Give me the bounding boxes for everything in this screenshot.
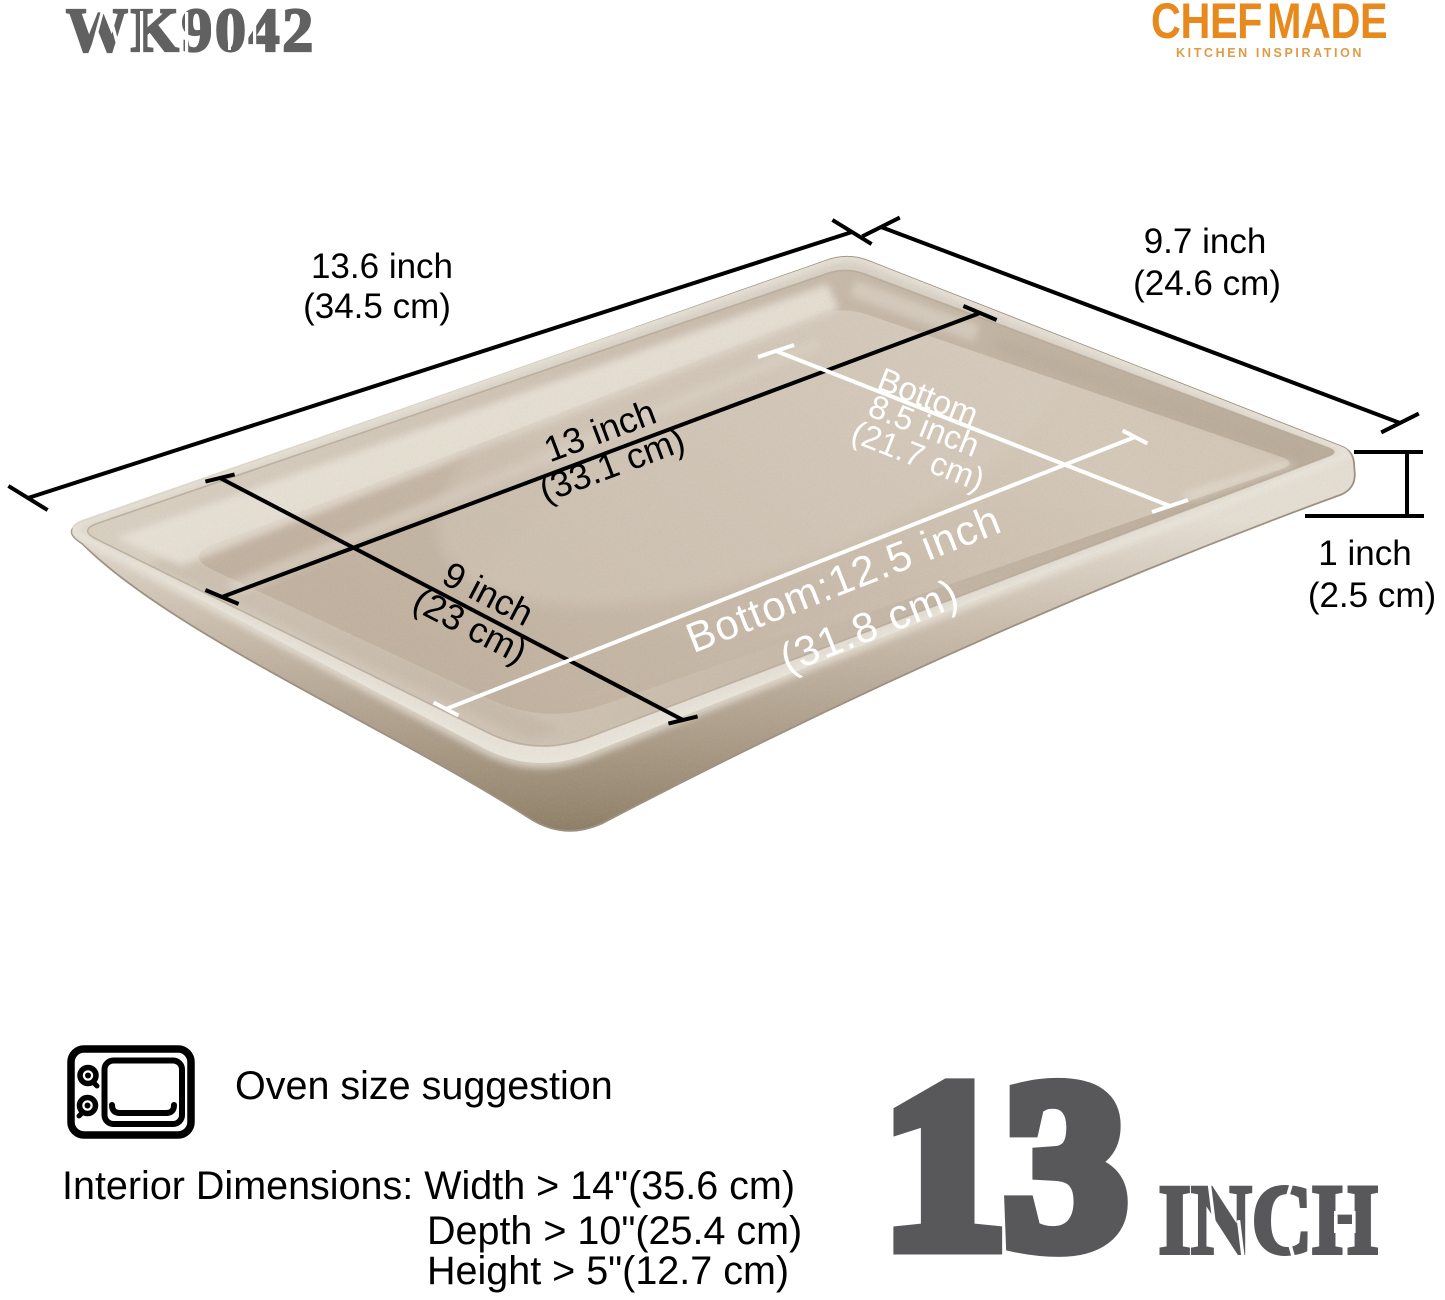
svg-text:WK9042: WK9042: [66, 0, 316, 65]
svg-text:Interior Dimensions: Width > 1: Interior Dimensions: Width > 14"(35.6 cm…: [62, 1164, 795, 1208]
svg-text:1 inch: 1 inch: [1318, 534, 1411, 573]
svg-text:CHEFMADE: CHEFMADE: [1151, 0, 1387, 49]
svg-text:13: 13: [884, 1033, 1127, 1295]
svg-text:Oven size suggestion: Oven size suggestion: [235, 1064, 613, 1108]
svg-text:Height > 5"(12.7 cm): Height > 5"(12.7 cm): [427, 1249, 789, 1293]
svg-text:(2.5 cm): (2.5 cm): [1308, 576, 1436, 615]
svg-text:Depth > 10"(25.4 cm): Depth > 10"(25.4 cm): [427, 1209, 802, 1253]
svg-text:INCH: INCH: [1158, 1164, 1377, 1274]
svg-text:(34.5 cm): (34.5 cm): [303, 287, 451, 326]
svg-text:13.6 inch: 13.6 inch: [311, 247, 453, 286]
svg-text:9.7 inch: 9.7 inch: [1144, 222, 1267, 261]
svg-text:KITCHEN INSPIRATION: KITCHEN INSPIRATION: [1176, 46, 1364, 60]
svg-text:(24.6 cm): (24.6 cm): [1133, 264, 1281, 303]
